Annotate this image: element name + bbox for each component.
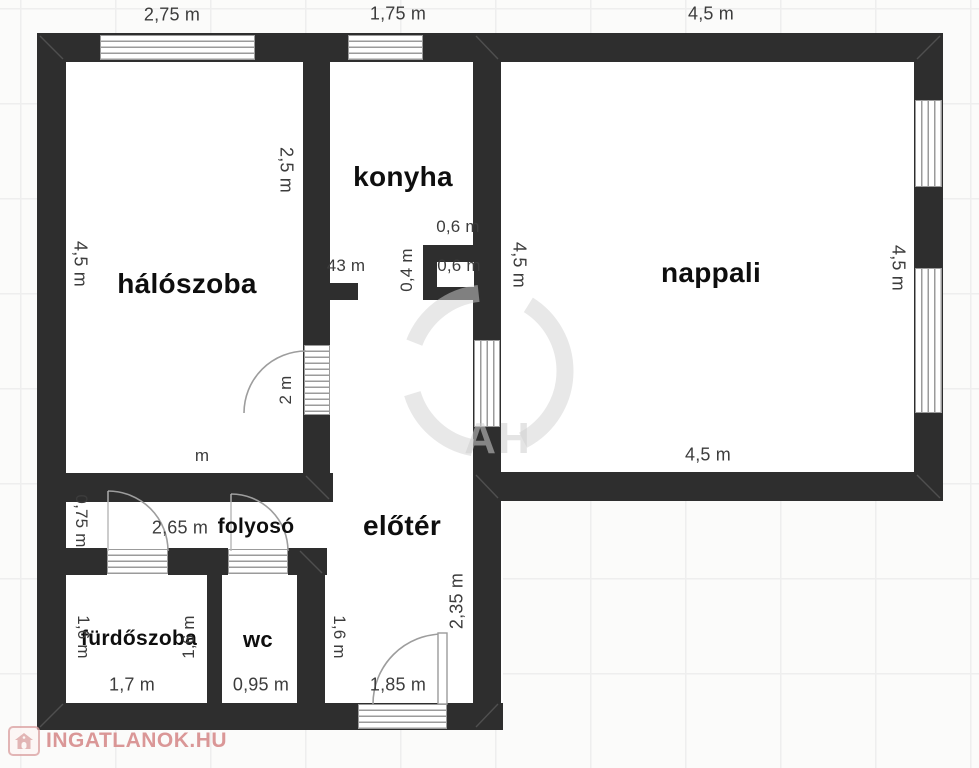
dim-nappali-bottom: 4,5 m: [685, 445, 731, 466]
window-nappali-right-2: [915, 268, 942, 413]
site-watermark: INGATLANOK.HU: [8, 726, 227, 756]
window-nappali-right-1: [915, 100, 942, 187]
house-icon: [8, 726, 40, 756]
dim-folyoso-left: 0,75 m: [71, 494, 91, 547]
wall-stub-konyha: [330, 283, 358, 300]
dim-furdo-left: 1,6 m: [73, 615, 93, 659]
center-watermark-text: AH: [448, 414, 548, 464]
wall-furdo-top-b: [168, 548, 228, 575]
room-label-wc: wc: [243, 627, 273, 653]
wall-furdo-top-a: [37, 548, 107, 575]
dim-entry-door: 1,85 m: [370, 675, 426, 696]
dim-konyha-left-wall: 2,5 m: [276, 147, 297, 193]
dim-shaft-left: 0,4 m: [397, 248, 417, 292]
door-threshold-furdo: [107, 549, 168, 574]
dim-eloter-right: 2,35 m: [447, 573, 468, 629]
dim-konyha-top: 1,75 m: [370, 4, 426, 25]
dim-wc-width: 0,95 m: [233, 675, 289, 696]
wall-left: [37, 33, 66, 730]
site-watermark-text: INGATLANOK.HU: [46, 729, 227, 753]
floor-plan-screenshot: AH hálószoba konyha nappali előtér folyo…: [0, 0, 979, 768]
door-leaf-haloszoba: [304, 345, 330, 415]
door-threshold-wc: [228, 549, 288, 574]
room-label-konyha: konyha: [353, 161, 453, 193]
dim-nappali-top: 4,5 m: [688, 4, 734, 25]
window-konyha-top: [348, 35, 423, 60]
dim-halo-door: 2 m: [276, 376, 296, 405]
dim-eloter-left: 1,6 m: [329, 615, 349, 659]
room-label-haloszoba: hálószoba: [117, 268, 257, 300]
dim-nappali-left: 4,5 m: [509, 242, 530, 288]
room-label-folyoso: folyosó: [218, 515, 295, 539]
dim-furdo-width: 1,7 m: [109, 675, 155, 696]
door-threshold-entry: [358, 704, 447, 729]
dim-halo-top: 2,75 m: [144, 5, 200, 26]
dim-shaft-inner: 0,6 m: [437, 256, 481, 276]
dim-nappali-right: 4,5 m: [888, 245, 909, 291]
room-label-eloter: előtér: [363, 510, 441, 542]
window-haloszoba-top: [100, 35, 255, 60]
dim-konyha-width: 43 m: [327, 256, 366, 276]
dim-furdo-right: 1,6 m: [179, 615, 199, 659]
dim-halo-bottom: m: [195, 446, 209, 466]
dim-folyoso-width: 2,65 m: [152, 518, 208, 539]
dim-halo-left: 4,5 m: [70, 241, 91, 287]
wall-nappali-bottom: [473, 472, 943, 501]
room-label-nappali: nappali: [661, 257, 761, 289]
dim-shaft-top: 0,6 m: [436, 217, 480, 237]
